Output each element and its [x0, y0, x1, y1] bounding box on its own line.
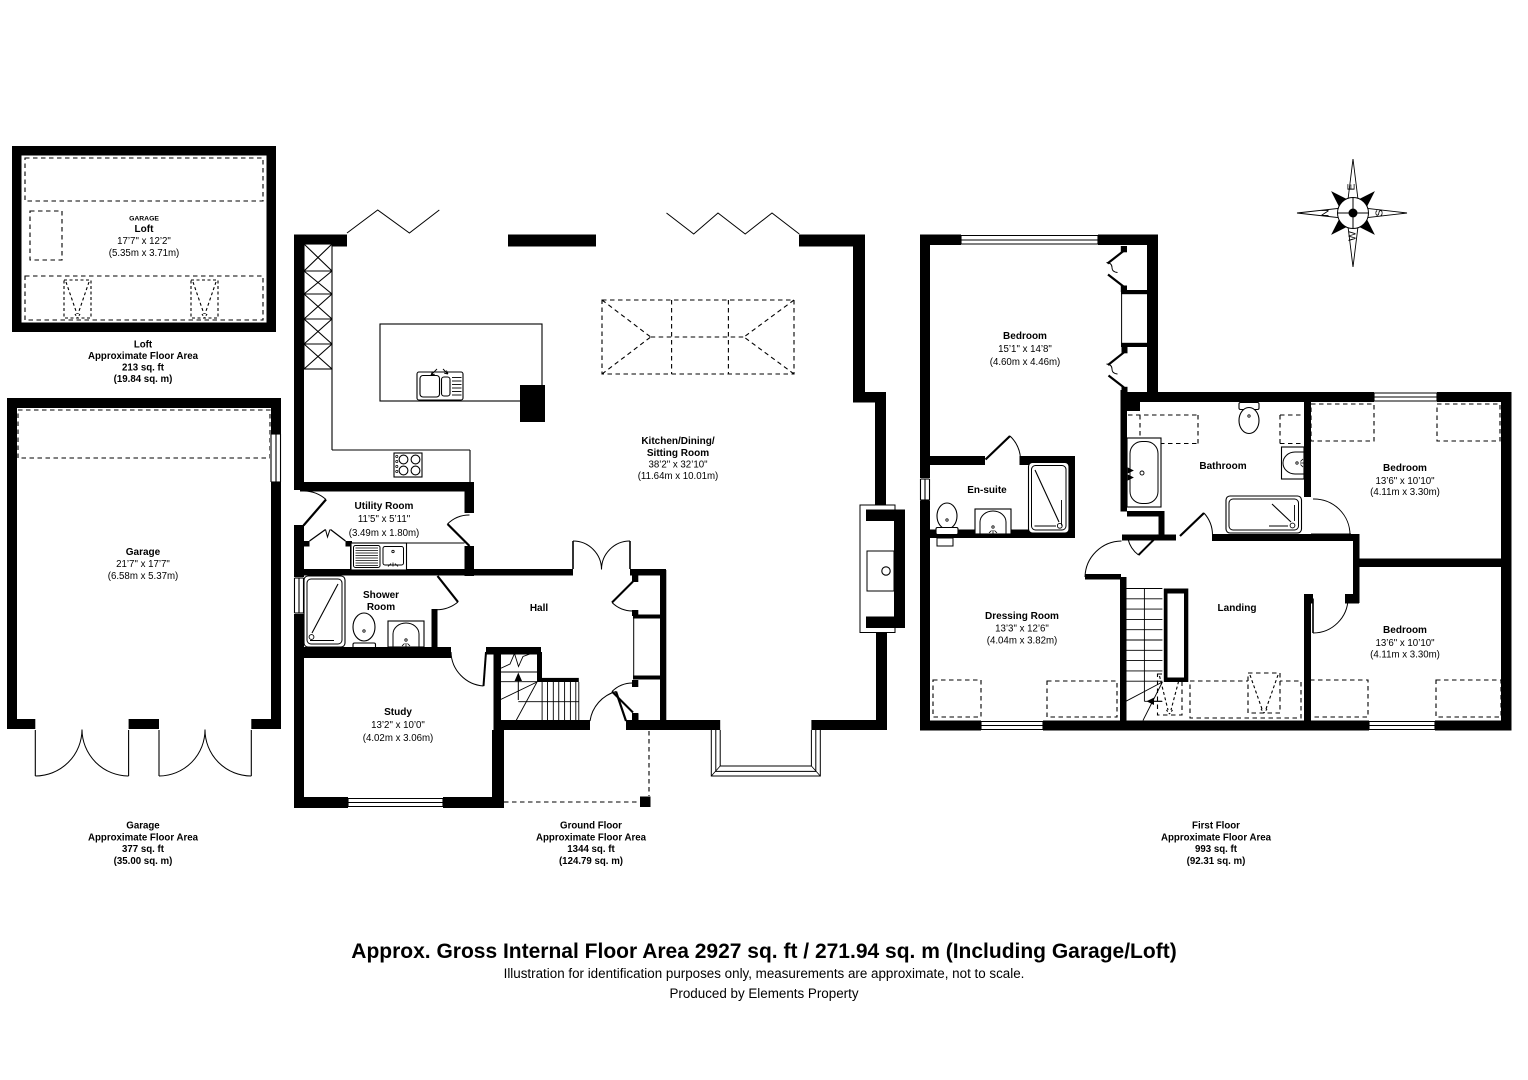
svg-text:(4.11m x 3.30m): (4.11m x 3.30m): [1370, 650, 1440, 661]
svg-text:Room: Room: [367, 602, 395, 613]
svg-text:13’3" x 12’6": 13’3" x 12’6": [995, 624, 1049, 635]
svg-text:N: N: [1320, 209, 1332, 217]
svg-text:13’6" x 10’10": 13’6" x 10’10": [1375, 476, 1435, 487]
svg-text:E: E: [1346, 183, 1358, 190]
svg-text:993 sq. ft: 993 sq. ft: [1195, 844, 1238, 855]
svg-text:17’7" x 12’2": 17’7" x 12’2": [117, 236, 171, 247]
svg-text:En-suite: En-suite: [967, 485, 1007, 496]
svg-text:Dressing Room: Dressing Room: [985, 611, 1059, 622]
svg-text:Approximate Floor Area: Approximate Floor Area: [1161, 832, 1272, 843]
svg-text:Approximate Floor Area: Approximate Floor Area: [88, 351, 199, 362]
svg-text:(4.11m x 3.30m): (4.11m x 3.30m): [1370, 487, 1440, 498]
svg-text:Utility Room: Utility Room: [355, 501, 414, 512]
svg-text:13’6" x 10’10": 13’6" x 10’10": [1375, 638, 1435, 649]
svg-text:S: S: [1374, 209, 1386, 216]
svg-text:Approximate Floor Area: Approximate Floor Area: [88, 832, 199, 843]
svg-text:GARAGE: GARAGE: [129, 216, 159, 223]
svg-text:(5.35m x 3.71m): (5.35m x 3.71m): [109, 248, 180, 259]
svg-text:Ground Floor: Ground Floor: [560, 821, 622, 832]
svg-text:13’2" x 10’0": 13’2" x 10’0": [371, 720, 425, 731]
svg-text:Approximate Floor Area: Approximate Floor Area: [536, 832, 647, 843]
svg-text:(3.49m x 1.80m): (3.49m x 1.80m): [349, 528, 420, 539]
svg-text:Bedroom: Bedroom: [1383, 625, 1427, 636]
svg-text:Bedroom: Bedroom: [1383, 463, 1427, 474]
svg-text:Loft: Loft: [135, 224, 155, 235]
svg-text:11’5" x 5’11": 11’5" x 5’11": [358, 514, 411, 525]
svg-text:Garage: Garage: [126, 821, 160, 832]
svg-text:W: W: [1347, 231, 1359, 241]
svg-text:15’1" x 14’8": 15’1" x 14’8": [998, 344, 1052, 355]
svg-text:213 sq. ft: 213 sq. ft: [122, 363, 165, 374]
svg-text:First Floor: First Floor: [1192, 821, 1240, 832]
svg-text:Loft: Loft: [134, 340, 153, 351]
svg-text:Approx. Gross Internal Floor A: Approx. Gross Internal Floor Area 2927 s…: [351, 940, 1176, 963]
svg-text:Bathroom: Bathroom: [1199, 461, 1246, 472]
svg-text:Produced by Elements Property: Produced by Elements Property: [669, 986, 858, 1001]
svg-text:38’2" x 32’10": 38’2" x 32’10": [648, 460, 708, 471]
svg-text:(4.60m x 4.46m): (4.60m x 4.46m): [990, 357, 1061, 368]
svg-text:Garage: Garage: [126, 547, 161, 558]
svg-text:(11.64m x 10.01m): (11.64m x 10.01m): [638, 471, 719, 482]
svg-text:Illustration for identificatio: Illustration for identification purposes…: [504, 966, 1025, 981]
svg-text:377 sq. ft: 377 sq. ft: [122, 844, 165, 855]
svg-text:Bedroom: Bedroom: [1003, 331, 1047, 342]
svg-text:Landing: Landing: [1218, 603, 1257, 614]
svg-text:Study: Study: [384, 707, 412, 718]
svg-text:1344 sq. ft: 1344 sq. ft: [567, 844, 615, 855]
svg-text:(4.04m x 3.82m): (4.04m x 3.82m): [987, 636, 1058, 647]
svg-text:21’7" x 17’7": 21’7" x 17’7": [116, 559, 170, 570]
svg-text:Shower: Shower: [363, 590, 399, 601]
svg-text:(35.00 sq. m): (35.00 sq. m): [114, 856, 173, 867]
svg-text:Sitting Room: Sitting Room: [647, 448, 709, 459]
svg-text:Kitchen/Dining/: Kitchen/Dining/: [641, 436, 715, 447]
svg-text:(4.02m x 3.06m): (4.02m x 3.06m): [363, 733, 434, 744]
svg-text:(124.79 sq. m): (124.79 sq. m): [559, 856, 623, 867]
svg-text:(92.31 sq. m): (92.31 sq. m): [1187, 856, 1246, 867]
svg-text:(6.58m x 5.37m): (6.58m x 5.37m): [108, 571, 179, 582]
svg-text:(19.84 sq. m): (19.84 sq. m): [114, 374, 173, 385]
svg-text:Hall: Hall: [530, 603, 549, 614]
